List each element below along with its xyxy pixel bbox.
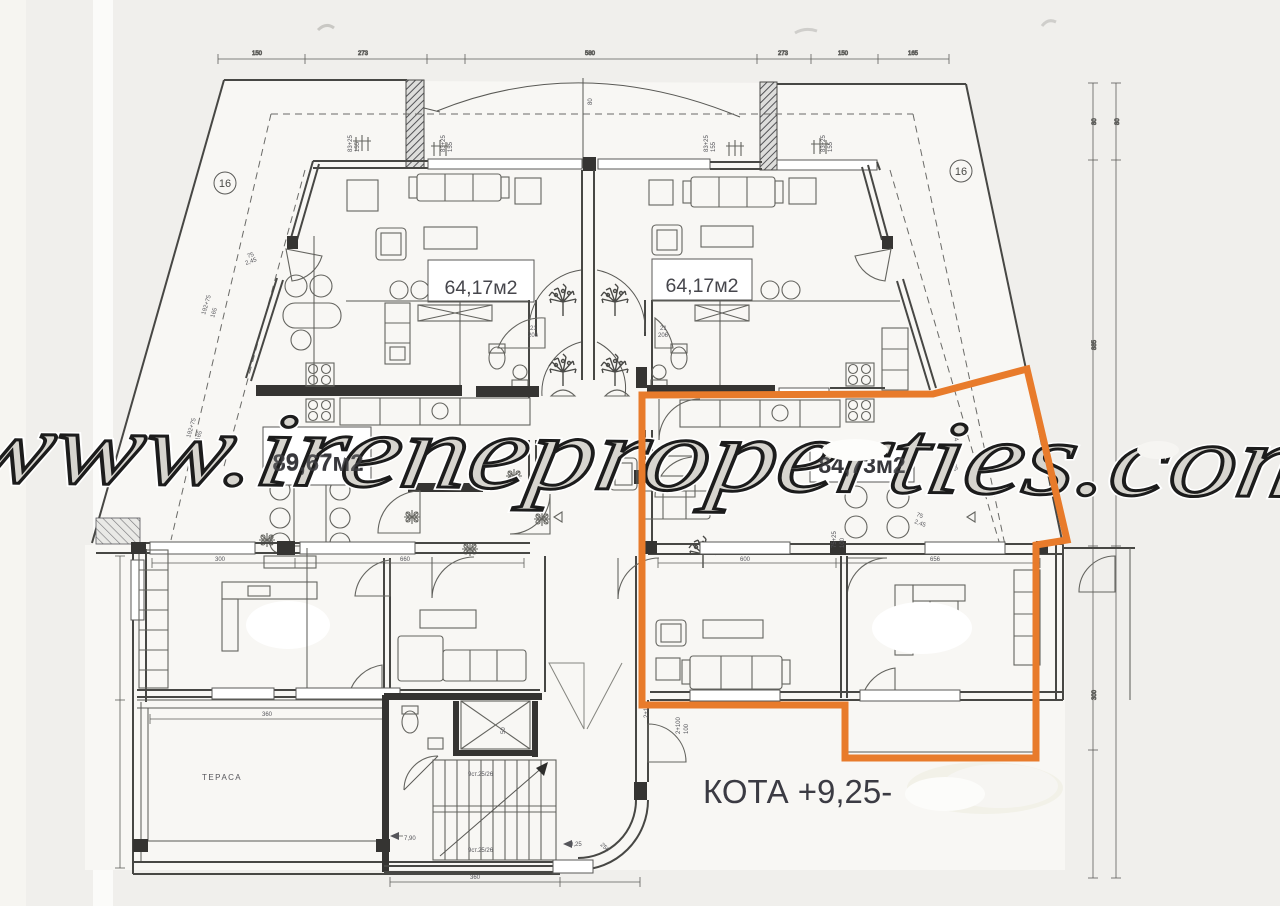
svg-text:9ст.25/26: 9ст.25/26 xyxy=(468,772,494,778)
svg-text:660: 660 xyxy=(400,557,411,563)
svg-text:50: 50 xyxy=(501,727,507,734)
svg-text:7,90: 7,90 xyxy=(404,836,416,842)
svg-text:КОТА +9,25-: КОТА +9,25- xyxy=(703,773,892,810)
svg-text:21: 21 xyxy=(530,326,537,332)
svg-text:150: 150 xyxy=(252,51,263,57)
svg-text:16: 16 xyxy=(955,166,967,178)
svg-text:64,17м2: 64,17м2 xyxy=(444,277,517,299)
svg-text:273: 273 xyxy=(358,51,369,57)
svg-text:206: 206 xyxy=(528,333,539,339)
svg-text:21: 21 xyxy=(660,326,667,332)
svg-text:273: 273 xyxy=(778,51,789,57)
svg-text:100: 100 xyxy=(684,723,690,734)
svg-text:600: 600 xyxy=(740,557,751,563)
svg-text:360: 360 xyxy=(470,875,481,881)
svg-text:83+25: 83+25 xyxy=(704,134,710,152)
svg-text:580: 580 xyxy=(585,51,596,57)
svg-text:155: 155 xyxy=(448,141,454,152)
svg-text:155: 155 xyxy=(828,141,834,152)
svg-text:83+25: 83+25 xyxy=(348,134,354,152)
svg-text:16: 16 xyxy=(219,178,231,190)
svg-text:89,67м2: 89,67м2 xyxy=(272,450,363,477)
svg-text:300: 300 xyxy=(1092,689,1098,700)
svg-text:206: 206 xyxy=(658,333,669,339)
svg-text:360: 360 xyxy=(262,712,273,718)
svg-text:885: 885 xyxy=(1092,339,1098,350)
svg-text:80: 80 xyxy=(1092,118,1098,125)
svg-text:656: 656 xyxy=(930,557,941,563)
svg-text:165: 165 xyxy=(908,51,919,57)
svg-text:ТЕРАСА: ТЕРАСА xyxy=(202,773,242,782)
svg-text:80: 80 xyxy=(588,98,594,105)
svg-text:100: 100 xyxy=(840,537,846,548)
svg-text:155: 155 xyxy=(711,141,717,152)
svg-text:64,17м2: 64,17м2 xyxy=(665,275,738,297)
svg-text:150: 150 xyxy=(838,51,849,57)
svg-text:300: 300 xyxy=(215,557,226,563)
svg-text:9ст.25/26: 9ст.25/26 xyxy=(468,848,494,854)
svg-text:75+25: 75+25 xyxy=(832,530,838,548)
svg-text:2+100: 2+100 xyxy=(676,716,682,734)
svg-text:80: 80 xyxy=(1115,118,1121,125)
